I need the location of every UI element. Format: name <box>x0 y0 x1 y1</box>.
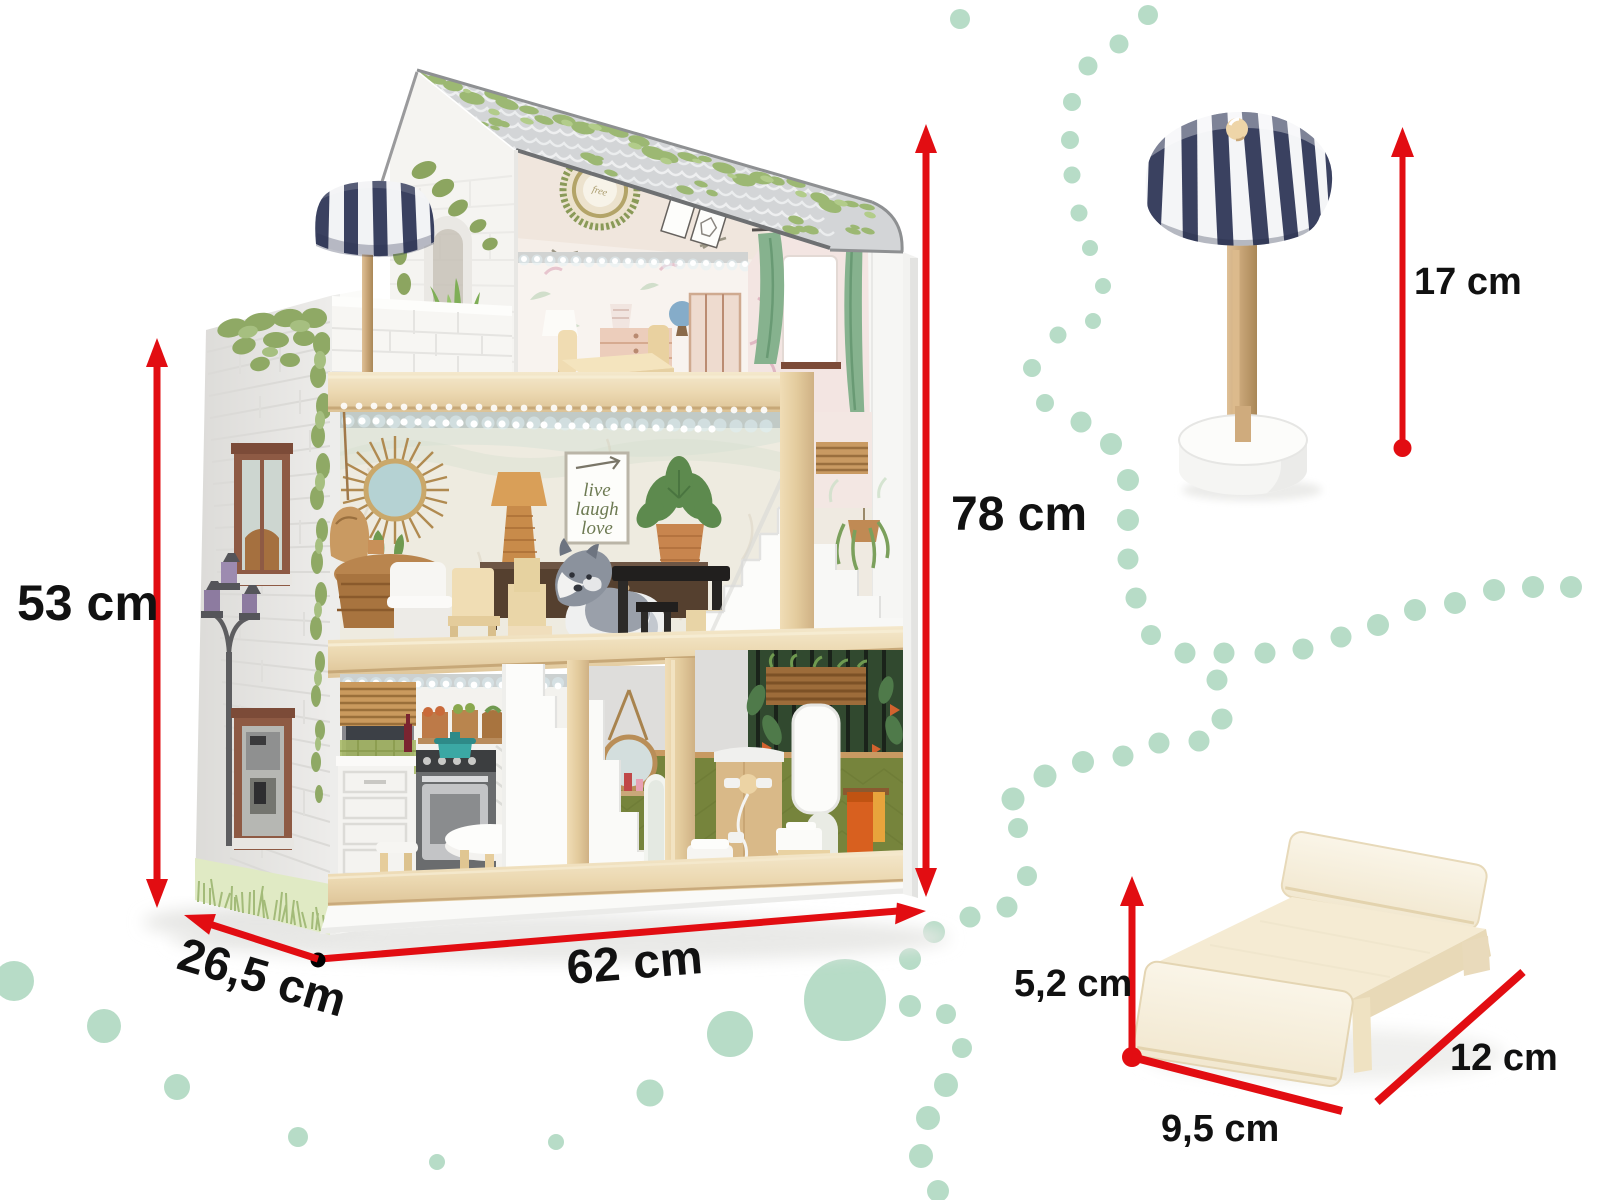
svg-text:53 cm: 53 cm <box>17 575 159 631</box>
svg-text:12 cm: 12 cm <box>1450 1037 1558 1079</box>
svg-text:5,2 cm: 5,2 cm <box>1014 963 1132 1005</box>
svg-text:live: live <box>583 480 610 501</box>
svg-text:9,5 cm: 9,5 cm <box>1161 1108 1279 1150</box>
svg-text:62 cm: 62 cm <box>565 931 705 995</box>
svg-text:love: love <box>581 518 613 539</box>
svg-text:laugh: laugh <box>575 499 618 520</box>
svg-text:17 cm: 17 cm <box>1414 261 1522 303</box>
svg-text:78 cm: 78 cm <box>951 488 1087 541</box>
